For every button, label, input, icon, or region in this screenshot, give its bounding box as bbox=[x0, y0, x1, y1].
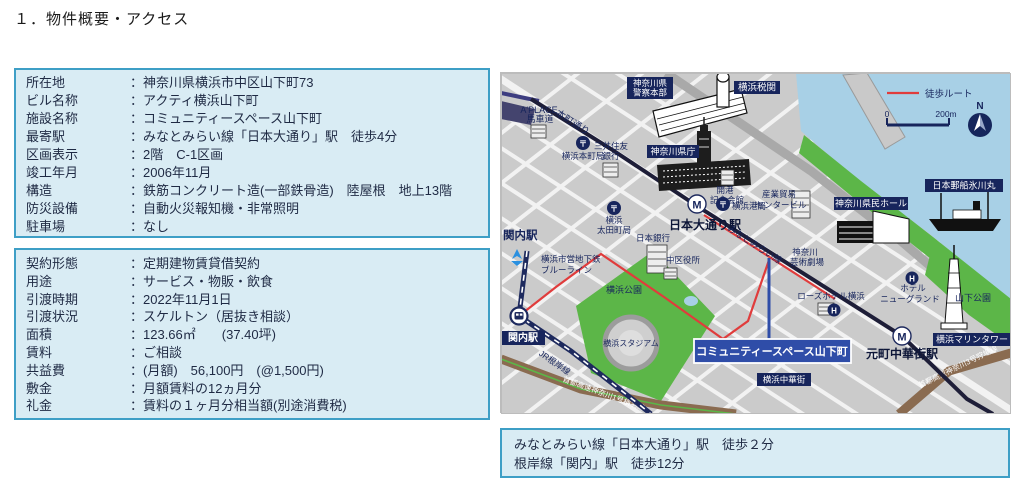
contract-row: 面積：123.66㎡ (37.40坪) bbox=[26, 326, 478, 344]
naka-ward-label: 中区役所 bbox=[666, 255, 701, 265]
jr-station-icon-kannai bbox=[511, 308, 528, 325]
walk-route-legend-label: 徒歩ルート bbox=[925, 88, 973, 100]
field-label: 契約形態 bbox=[26, 255, 130, 273]
police-hq-label: 神奈川県 bbox=[633, 78, 668, 88]
kannai-subway-label: 関内駅 bbox=[503, 228, 538, 242]
svg-text:馬車道: 馬車道 bbox=[526, 113, 553, 124]
field-value: ：コミュニティースペース山下町 bbox=[130, 110, 478, 128]
svg-text:M: M bbox=[692, 200, 701, 212]
sangyo-label: 産業貿易 bbox=[762, 189, 796, 199]
park-pond bbox=[684, 296, 698, 306]
field-value: ：(月額) 56,100円 (@1,500円) bbox=[130, 362, 478, 380]
smbc-label: 三井住友 bbox=[594, 141, 629, 151]
svg-text:〒: 〒 bbox=[579, 140, 587, 149]
metro-station-icon-nihon-odori: M bbox=[688, 195, 706, 213]
metro-station-icon-motomachi: M bbox=[893, 327, 911, 345]
field-label: 所在地 bbox=[26, 74, 130, 92]
field-value: ：2022年11月1日 bbox=[130, 291, 478, 309]
overview-row: ビル名称：アクティ横浜山下町 bbox=[26, 92, 478, 110]
property-overview-box: 所在地：神奈川県横浜市中区山下町73 ビル名称：アクティ横浜山下町 施設名称：コ… bbox=[14, 68, 490, 238]
map-canvas: 首都高速神奈川1号横羽線 首都高速神奈川3号狩場線 コミュニティースペース山下町 bbox=[501, 73, 1011, 414]
contract-terms-box: 契約形態：定期建物賃貸借契約 用途：サービス・物販・飲食 引渡時期：2022年1… bbox=[14, 248, 490, 420]
svg-text:N: N bbox=[976, 101, 983, 112]
property-label: コミュニティースペース山下町 bbox=[694, 339, 851, 363]
svg-text:ブルーライン: ブルーライン bbox=[541, 265, 592, 275]
hikawamaru-label: 日本郵船氷川丸 bbox=[932, 180, 995, 191]
field-value: ：なし bbox=[130, 218, 478, 236]
svg-text:ニューグランド: ニューグランド bbox=[880, 294, 940, 304]
scale-200m-label: 200m bbox=[935, 109, 956, 119]
page-title: １．物件概要・アクセス bbox=[14, 8, 189, 29]
access-line: みなとみらい線「日本大通り」駅 徒歩２分 bbox=[514, 435, 996, 454]
field-label: 防災設備 bbox=[26, 200, 130, 218]
svg-text:〒: 〒 bbox=[610, 205, 618, 214]
field-value: ：サービス・物販・飲食 bbox=[130, 273, 478, 291]
field-label: 面積 bbox=[26, 326, 130, 344]
overview-row: 防災設備：自動火災報知機・非常照明 bbox=[26, 200, 478, 218]
contract-row: 賃料：ご相談 bbox=[26, 344, 478, 362]
svg-text:警察本部: 警察本部 bbox=[633, 88, 668, 98]
contract-row: 礼金：賃料の１ヶ月分相当額(別途消費税) bbox=[26, 397, 478, 415]
otamachi-post-label: 横浜 bbox=[605, 215, 623, 225]
rose-hotel-label: ローズホテル横浜 bbox=[797, 291, 865, 301]
field-value: ：スケルトン（居抜き相談） bbox=[130, 308, 478, 326]
field-label: 引渡状況 bbox=[26, 308, 130, 326]
contract-row: 用途：サービス・物販・飲食 bbox=[26, 273, 478, 291]
post-office-icon-honcho: 〒 bbox=[576, 136, 590, 150]
field-label: ビル名称 bbox=[26, 92, 130, 110]
kenmin-hall-label: 神奈川県民ホール bbox=[835, 198, 907, 209]
field-label: 最寄駅 bbox=[26, 128, 130, 146]
svg-text:M: M bbox=[897, 332, 906, 344]
field-value: ：みなとみらい線「日本大通り」駅 徒歩4分 bbox=[130, 128, 478, 146]
field-label: 用途 bbox=[26, 273, 130, 291]
access-map: 首都高速神奈川1号横羽線 首都高速神奈川3号狩場線 コミュニティースペース山下町 bbox=[500, 72, 1010, 413]
svg-text:太田町局: 太田町局 bbox=[597, 225, 631, 235]
svg-text:芸術劇場: 芸術劇場 bbox=[790, 257, 825, 267]
post-office-icon-port: 〒 bbox=[716, 197, 730, 211]
post-office-icon-otamachi: 〒 bbox=[607, 201, 621, 215]
field-value: ：賃料の１ヶ月分相当額(別途消費税) bbox=[130, 397, 478, 415]
hotel-icon-new-grand: H bbox=[906, 272, 919, 285]
field-value: ：定期建物賃貸借契約 bbox=[130, 255, 478, 273]
scale-zero-label: 0 bbox=[885, 109, 890, 119]
stadium-label: 横浜スタジアム bbox=[603, 338, 658, 348]
contract-row: 契約形態：定期建物賃貸借契約 bbox=[26, 255, 478, 273]
property-label-text: コミュニティースペース山下町 bbox=[696, 344, 847, 358]
field-label: 賃料 bbox=[26, 344, 130, 362]
chinatown-label: 横浜中華街 bbox=[763, 375, 806, 385]
field-value: ：鉄筋コンクリート造(一部鉄骨造) 陸屋根 地上13階 bbox=[130, 182, 478, 200]
field-value: ：123.66㎡ (37.40坪) bbox=[130, 326, 478, 344]
field-label: 引渡時期 bbox=[26, 291, 130, 309]
svg-text:センタービル: センタービル bbox=[755, 200, 807, 210]
field-label: 区画表示 bbox=[26, 146, 130, 164]
field-value: ：月額賃料の12ヵ月分 bbox=[130, 380, 478, 398]
field-label: 敷金 bbox=[26, 380, 130, 398]
overview-row: 竣工年月：2006年11月 bbox=[26, 164, 478, 182]
field-value: ：自動火災報知機・非常照明 bbox=[130, 200, 478, 218]
field-value: ：2階 C-1区画 bbox=[130, 146, 478, 164]
hotel-icon-rose: H bbox=[828, 304, 841, 317]
overview-row: 駐車場：なし bbox=[26, 218, 478, 236]
field-label: 竣工年月 bbox=[26, 164, 130, 182]
svg-text:〒: 〒 bbox=[719, 201, 727, 210]
contract-row: 引渡状況：スケルトン（居抜き相談） bbox=[26, 308, 478, 326]
svg-text:H: H bbox=[831, 307, 837, 316]
blue-line-label: 横浜市営地下鉄 bbox=[541, 254, 601, 264]
field-label: 駐車場 bbox=[26, 218, 130, 236]
overview-row: 施設名称：コミュニティースペース山下町 bbox=[26, 110, 478, 128]
contract-row: 共益費：(月額) 56,100円 (@1,500円) bbox=[26, 362, 478, 380]
field-value: ：神奈川県横浜市中区山下町73 bbox=[130, 74, 478, 92]
motomachi-station-label: 元町中華街駅 bbox=[866, 346, 939, 361]
honcho-post-label: 横浜本町局 bbox=[562, 151, 605, 161]
overview-row: 区画表示：2階 C-1区画 bbox=[26, 146, 478, 164]
yokohama-park-label: 横浜公園 bbox=[606, 284, 642, 295]
customs-label: 横浜税関 bbox=[738, 82, 776, 94]
overview-row: 所在地：神奈川県横浜市中区山下町73 bbox=[26, 74, 478, 92]
page: １．物件概要・アクセス 所在地：神奈川県横浜市中区山下町73 ビル名称：アクティ… bbox=[0, 0, 1024, 490]
field-value: ：アクティ横浜山下町 bbox=[130, 92, 478, 110]
overview-row: 構造：鉄筋コンクリート造(一部鉄骨造) 陸屋根 地上13階 bbox=[26, 182, 478, 200]
kannai-jr-label: 関内駅 bbox=[508, 331, 539, 344]
boj-label: 日本銀行 bbox=[636, 233, 671, 243]
new-grand-label: ホテル bbox=[900, 283, 926, 293]
yamashita-park-label: 山下公園 bbox=[955, 293, 991, 303]
contract-row: 敷金：月額賃料の12ヵ月分 bbox=[26, 380, 478, 398]
field-label: 施設名称 bbox=[26, 110, 130, 128]
access-summary-box: みなとみらい線「日本大通り」駅 徒歩２分 根岸線「関内」駅 徒歩12分 bbox=[500, 428, 1010, 478]
overview-row: 最寄駅：みなとみらい線「日本大通り」駅 徒歩4分 bbox=[26, 128, 478, 146]
field-label: 構造 bbox=[26, 182, 130, 200]
access-line: 根岸線「関内」駅 徒歩12分 bbox=[514, 454, 996, 473]
svg-text:銀行: 銀行 bbox=[602, 151, 620, 161]
geijutsu-label: 神奈川 bbox=[792, 247, 818, 257]
field-label: 礼金 bbox=[26, 397, 130, 415]
field-value: ：2006年11月 bbox=[130, 164, 478, 182]
kencho-label: 神奈川県庁 bbox=[650, 146, 695, 157]
field-label: 共益費 bbox=[26, 362, 130, 380]
marine-tower-label: 横浜マリンタワー bbox=[936, 334, 1008, 345]
field-value: ：ご相談 bbox=[130, 344, 478, 362]
kaiko-kinenkan-label: 開港 bbox=[716, 185, 734, 195]
svg-text:H: H bbox=[909, 275, 915, 284]
contract-row: 引渡時期：2022年11月1日 bbox=[26, 291, 478, 309]
